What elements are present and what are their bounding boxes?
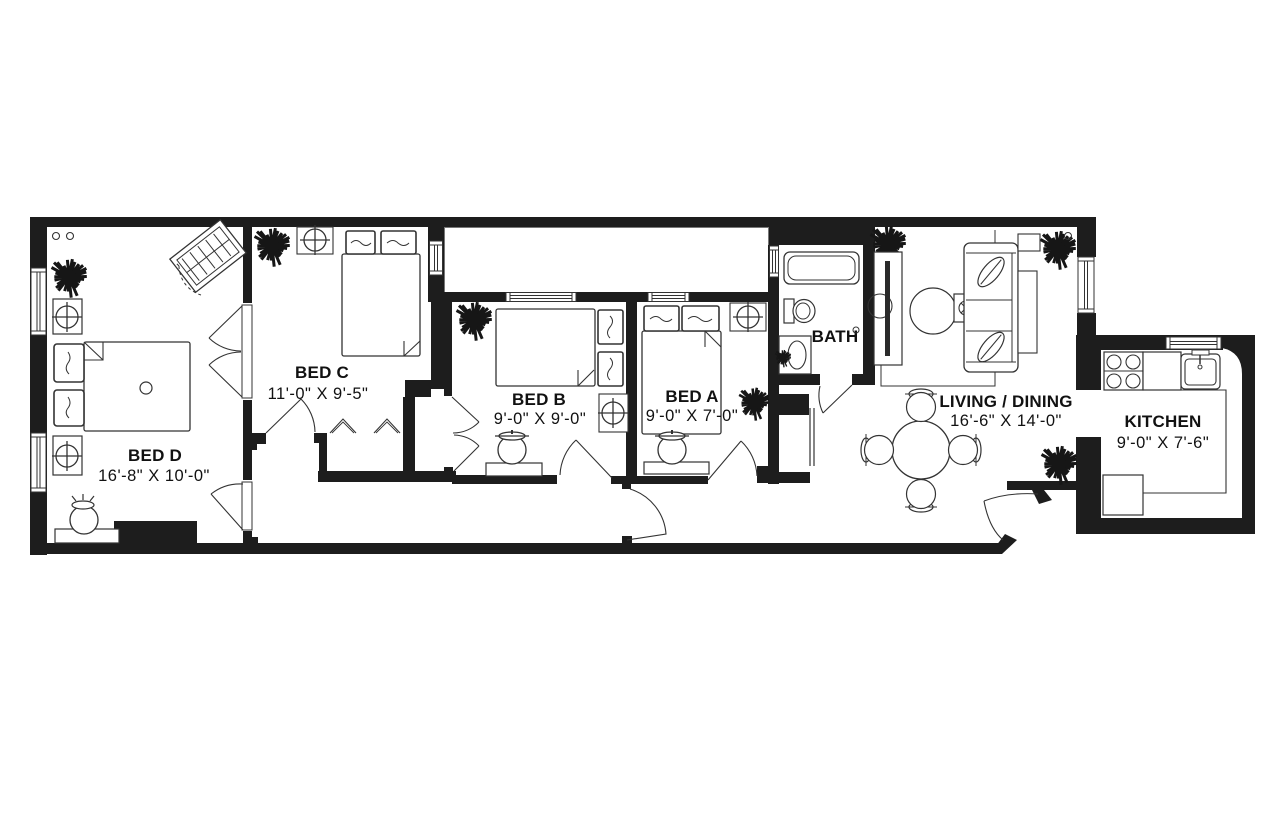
svg-text:BED A: BED A: [665, 387, 718, 406]
svg-text:9'-0" X 9'-0": 9'-0" X 9'-0": [494, 410, 586, 428]
svg-text:9'-0" X 7'-6": 9'-0" X 7'-6": [1117, 434, 1209, 452]
svg-text:LIVING / DINING: LIVING / DINING: [939, 392, 1072, 411]
svg-text:BED D: BED D: [128, 446, 182, 465]
svg-text:BED B: BED B: [512, 390, 566, 409]
svg-text:16'-8" X 10'-0": 16'-8" X 10'-0": [98, 467, 210, 485]
svg-text:BED C: BED C: [295, 363, 349, 382]
svg-text:KITCHEN: KITCHEN: [1125, 412, 1202, 431]
svg-text:BATH: BATH: [812, 327, 859, 346]
svg-text:9'-0" X 7'-0": 9'-0" X 7'-0": [646, 407, 738, 425]
svg-text:11'-0" X 9'-5": 11'-0" X 9'-5": [268, 385, 369, 403]
svg-text:16'-6" X 14'-0": 16'-6" X 14'-0": [950, 412, 1062, 430]
